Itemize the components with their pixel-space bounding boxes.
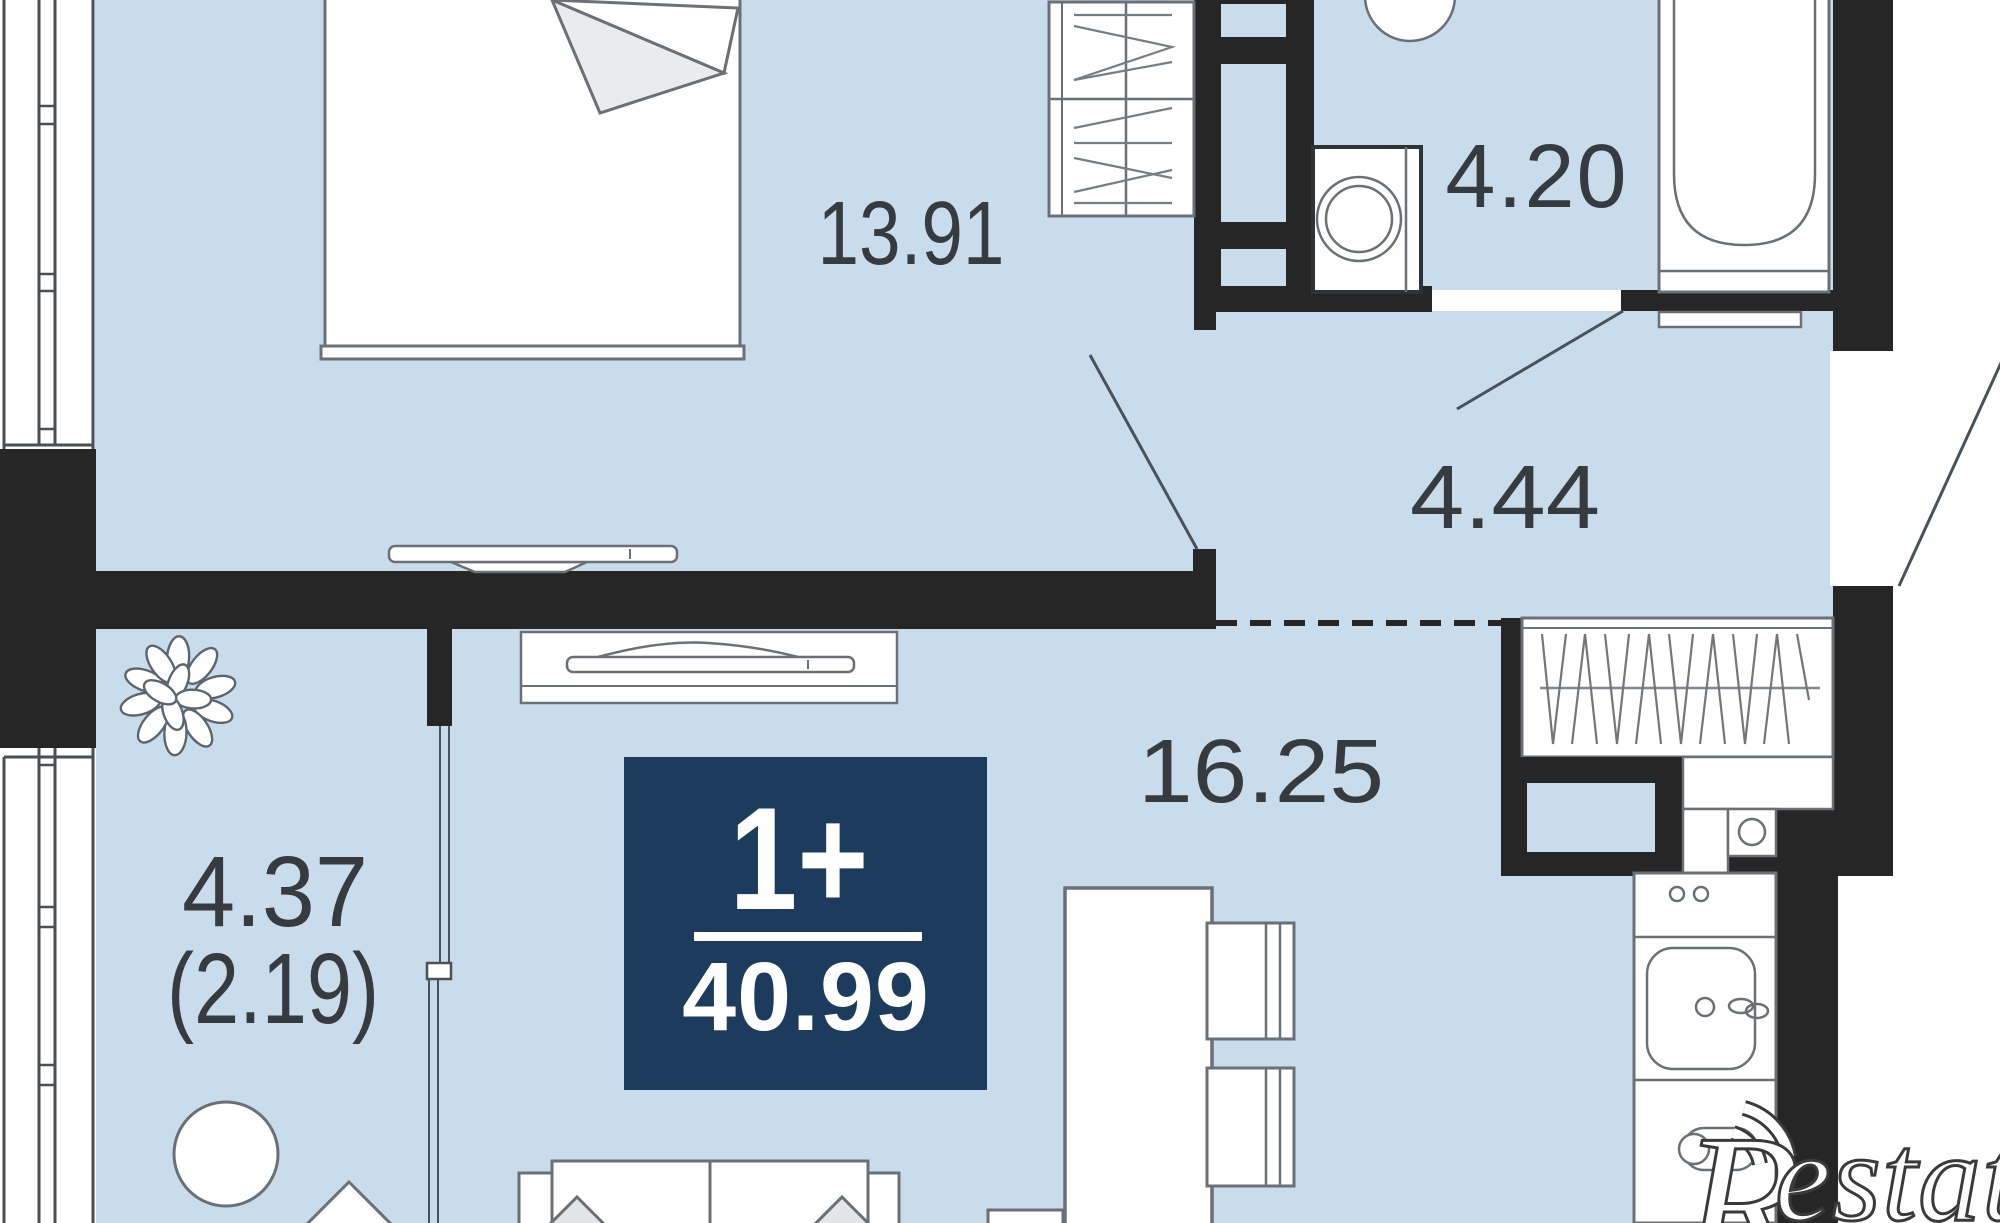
svg-text:4.44: 4.44	[1410, 448, 1600, 548]
svg-text:40.99: 40.99	[682, 942, 930, 1051]
svg-text:4.37: 4.37	[182, 836, 368, 948]
svg-text:1+: 1+	[730, 777, 869, 940]
svg-text:estate: estate	[1775, 1109, 2000, 1223]
svg-text:4.20: 4.20	[1445, 127, 1628, 227]
svg-text:(2.19): (2.19)	[167, 933, 379, 1045]
svg-text:13.91: 13.91	[818, 184, 1005, 284]
svg-text:16.25: 16.25	[1138, 722, 1384, 822]
